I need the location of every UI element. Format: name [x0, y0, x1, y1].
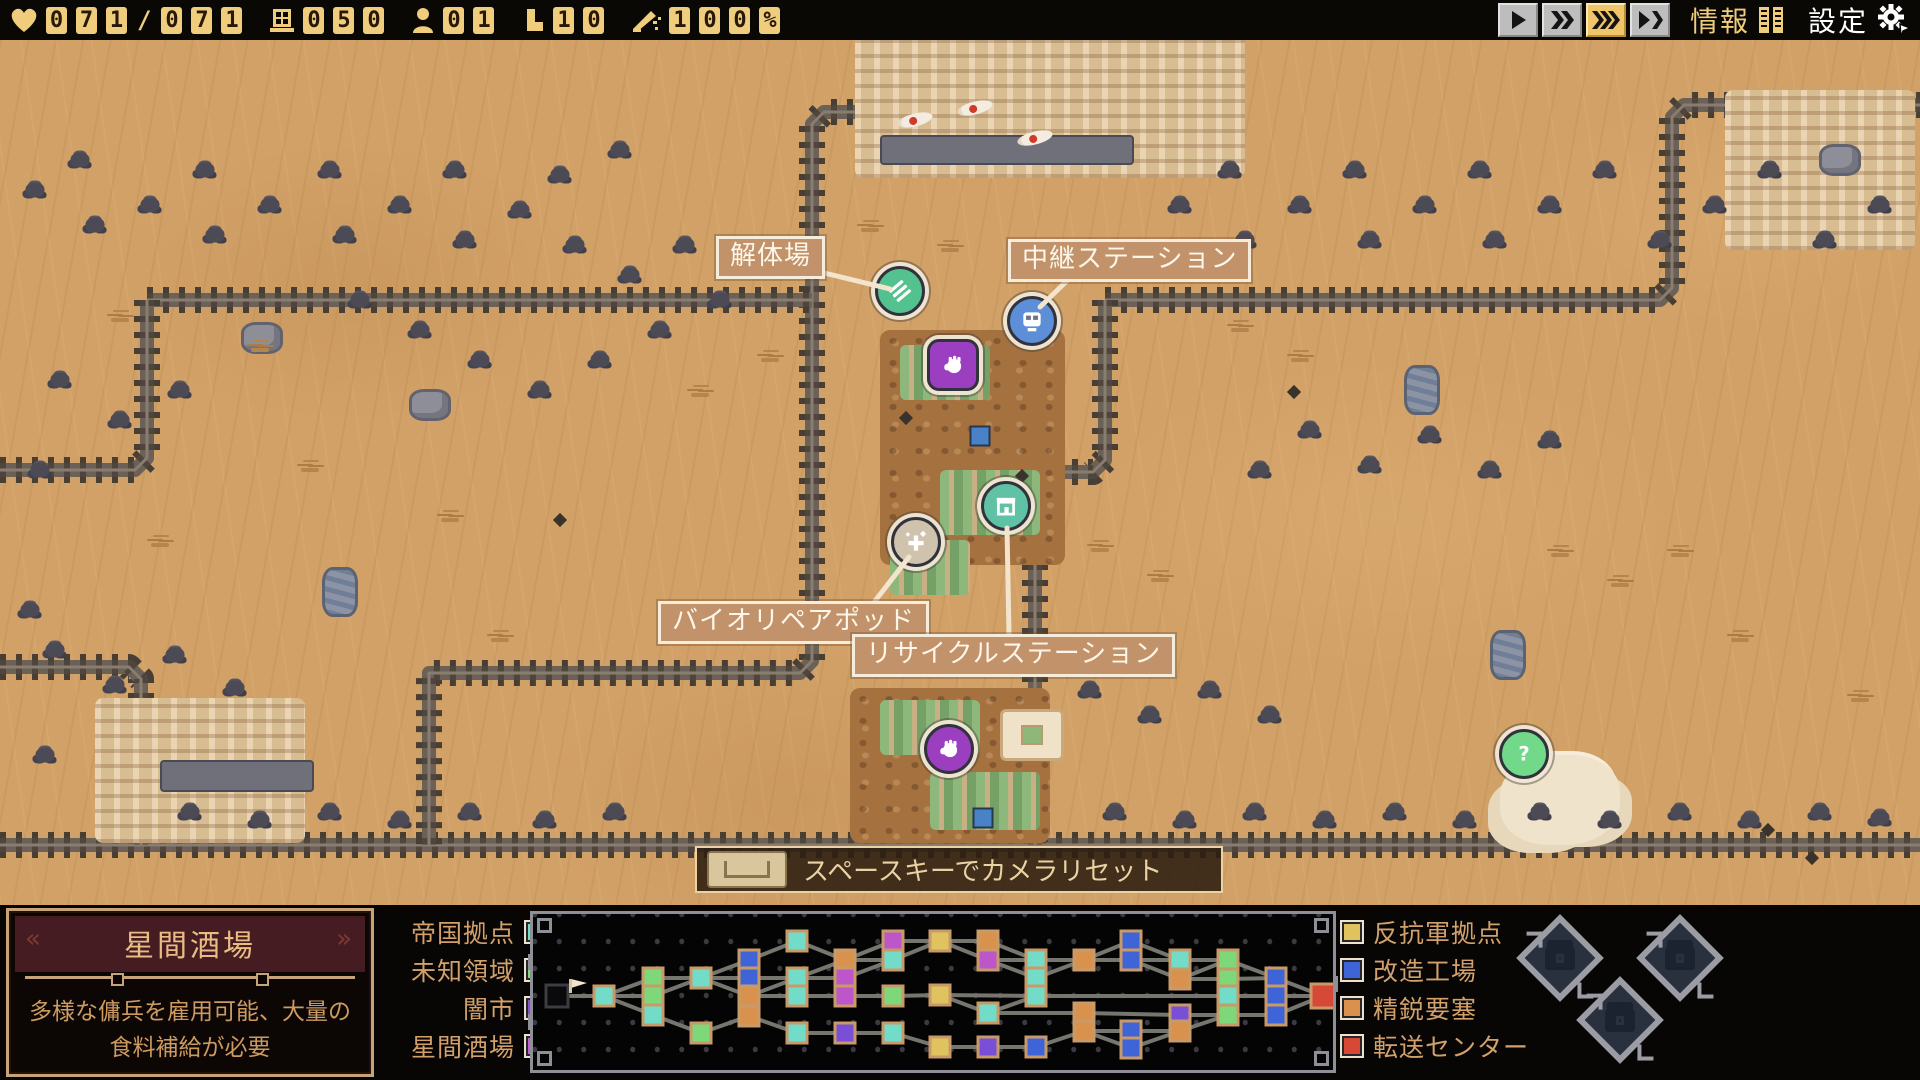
- camera-hint-text: スペースキーでカメラリセット: [803, 851, 1162, 888]
- bush: [1651, 233, 1670, 248]
- grass: [1551, 553, 1569, 557]
- bush: [31, 463, 50, 478]
- slot-chevron: [1587, 994, 1603, 1010]
- digit: 0: [46, 7, 67, 34]
- bush: [1471, 163, 1490, 178]
- bush: [1416, 198, 1435, 213]
- bush: [106, 678, 125, 693]
- bush: [226, 681, 245, 696]
- grass: [111, 318, 129, 322]
- bush: [1316, 813, 1335, 828]
- legend-label: 転送センター: [1373, 1028, 1529, 1064]
- route-node-orange[interactable]: [1074, 950, 1094, 970]
- legend-swatch: [1340, 1034, 1364, 1058]
- grass: [1851, 698, 1869, 702]
- question-icon: ?: [1511, 741, 1537, 767]
- map-label-relay: 中継ステーション: [1008, 239, 1251, 282]
- resource-crew: 01: [411, 7, 495, 34]
- bush: [36, 748, 55, 763]
- location-description: 多様な傭兵を雇用可能、大量の 食料補給が必要: [9, 987, 371, 1074]
- bush: [591, 353, 610, 368]
- rock2: [1490, 630, 1526, 680]
- bush: [1811, 805, 1830, 820]
- bush: [531, 383, 550, 398]
- route-node-orange[interactable]: [1074, 1021, 1094, 1041]
- grass: [861, 228, 879, 232]
- map-label-recycle: リサイクルステーション: [852, 634, 1175, 677]
- bush: [621, 268, 640, 283]
- bush: [321, 805, 340, 820]
- slot-chevron: [1527, 932, 1543, 948]
- pad-marker-top[interactable]: [927, 339, 979, 391]
- grass: [1731, 638, 1749, 642]
- bush: [551, 168, 570, 183]
- cursor-icon: [1900, 24, 1910, 37]
- person-icon: [411, 7, 435, 33]
- bush: [711, 293, 730, 308]
- legend-item: 転送センター: [1340, 1027, 1529, 1065]
- bush: [456, 233, 475, 248]
- route-node-blue[interactable]: [1026, 1037, 1046, 1057]
- bush: [46, 643, 65, 658]
- route-node-cyan[interactable]: [787, 986, 807, 1006]
- bush: [1596, 163, 1615, 178]
- boot-icon: [521, 7, 545, 33]
- bush: [1871, 198, 1890, 213]
- route-node-blue[interactable]: [1266, 1005, 1286, 1025]
- speed-fast[interactable]: [1542, 3, 1582, 37]
- rock: [1819, 144, 1861, 176]
- bush: [1171, 198, 1190, 213]
- route-node-cyan[interactable]: [691, 968, 711, 988]
- resource-supplies: 050: [269, 7, 385, 34]
- bush: [651, 323, 670, 338]
- pad: [1000, 709, 1064, 761]
- bush: [111, 413, 130, 428]
- route-node-magenta[interactable]: [978, 950, 998, 970]
- bush: [71, 153, 90, 168]
- bush: [321, 163, 340, 178]
- legend-item: 精鋭要塞: [1340, 989, 1477, 1027]
- route-node-orange[interactable]: [739, 1006, 759, 1026]
- bush: [336, 228, 355, 243]
- bush: [1456, 813, 1475, 828]
- bush: [1481, 463, 1500, 478]
- route-node-green[interactable]: [1218, 1005, 1238, 1025]
- legend-label: 未知領域: [411, 952, 515, 988]
- chest-icon: [1545, 946, 1575, 970]
- route-node-cyan[interactable]: [978, 1003, 998, 1023]
- quill-icon: [631, 7, 661, 33]
- bush: [196, 163, 215, 178]
- slot-chevron: [1647, 932, 1663, 948]
- legend-swatch: [1340, 996, 1364, 1020]
- svg-text:?: ?: [1518, 743, 1529, 766]
- route-node-cyan[interactable]: [594, 986, 614, 1006]
- spacebar-key-icon: [707, 851, 787, 888]
- route-node-cyan[interactable]: [883, 1023, 903, 1043]
- route-node-violet[interactable]: [978, 1037, 998, 1057]
- legend-item: 改造工場: [1340, 951, 1477, 989]
- digit: 0: [161, 7, 182, 34]
- route-node-current[interactable]: [546, 985, 568, 1007]
- speed-skip[interactable]: [1630, 3, 1670, 37]
- camera-hint: スペースキーでカメラリセット: [695, 846, 1223, 893]
- slot-chevron: [1637, 1045, 1653, 1061]
- legend-swatch: [1340, 958, 1364, 982]
- bush: [181, 805, 200, 820]
- grass: [1151, 578, 1169, 582]
- resource-counters: 071/0710500110100%: [0, 7, 807, 34]
- legend-item: 星間酒場: [411, 1027, 548, 1065]
- grass: [251, 348, 269, 352]
- settings-button[interactable]: 設定: [1808, 0, 1912, 40]
- grass: [441, 518, 459, 522]
- settings-button-label: 設定: [1808, 0, 1868, 40]
- route-node-blue[interactable]: [1121, 950, 1141, 970]
- bush: [1346, 163, 1365, 178]
- map-label-dismantle: 解体場: [716, 236, 825, 279]
- route-node-cyan[interactable]: [1170, 950, 1190, 970]
- chest-icon: [1605, 1008, 1635, 1032]
- route-node-cyan[interactable]: [1026, 986, 1046, 1006]
- route-node-cyan[interactable]: [1218, 986, 1238, 1006]
- route-node-violet[interactable]: [835, 1023, 855, 1043]
- biorepair-marker[interactable]: [891, 517, 941, 567]
- bush: [261, 198, 280, 213]
- bush: [21, 603, 40, 618]
- digit: %: [759, 7, 780, 34]
- route-node-orange[interactable]: [1170, 969, 1190, 989]
- info-button[interactable]: 情報: [1690, 0, 1788, 40]
- bush: [86, 218, 105, 233]
- bush: [471, 353, 490, 368]
- bush: [1386, 805, 1405, 820]
- bush: [611, 143, 630, 158]
- hand-icon: [940, 352, 966, 378]
- bush: [511, 203, 530, 218]
- sparkle-icon: [903, 529, 929, 555]
- digit: /: [137, 7, 151, 34]
- bush: [411, 323, 430, 338]
- recycle-marker[interactable]: [981, 481, 1031, 531]
- crate: [973, 808, 994, 829]
- legend-right: 反抗軍拠点改造工場精鋭要塞転送センター: [1340, 913, 1540, 1065]
- bush: [1741, 813, 1760, 828]
- location-info-card: 星間酒場 多様な傭兵を雇用可能、大量の 食料補給が必要: [6, 908, 374, 1077]
- grass: [761, 358, 779, 362]
- info-button-label: 情報: [1690, 0, 1750, 40]
- window-icon: [269, 7, 295, 33]
- crate: [970, 426, 991, 447]
- resource-parts: 10: [521, 7, 605, 34]
- route-node-green[interactable]: [1218, 950, 1238, 970]
- bush: [1201, 683, 1220, 698]
- bush: [1081, 683, 1100, 698]
- grass: [301, 468, 319, 472]
- top-hud-bar: 071/0710500110100% 情報 設定: [0, 0, 1920, 40]
- speed-play[interactable]: [1498, 3, 1538, 37]
- digit: 7: [76, 7, 97, 34]
- bush: [1251, 463, 1270, 478]
- bush: [26, 183, 45, 198]
- digit: 0: [699, 7, 720, 34]
- grass: [1291, 358, 1309, 362]
- bush: [1541, 198, 1560, 213]
- bush: [1246, 805, 1265, 820]
- ledger-icon: [1756, 5, 1788, 35]
- legend-left: 帝国拠点未知領域闇市星間酒場: [398, 913, 548, 1065]
- route-node-green[interactable]: [691, 1023, 711, 1043]
- legend-item: 帝国拠点: [411, 913, 548, 951]
- bush: [1541, 433, 1560, 448]
- digit: 0: [303, 7, 324, 34]
- grass: [1091, 548, 1109, 552]
- route-node-cyan[interactable]: [787, 931, 807, 951]
- route-node-orange[interactable]: [978, 931, 998, 951]
- grass: [1611, 583, 1629, 587]
- speed-buttons: [1498, 3, 1670, 37]
- route-node-yellow[interactable]: [930, 931, 950, 951]
- rock: [409, 389, 451, 421]
- route-network-panel[interactable]: [530, 911, 1336, 1073]
- resource-morale: 100%: [631, 7, 781, 34]
- resource-hp: 071/071: [10, 7, 243, 34]
- digit: 5: [333, 7, 354, 34]
- route-node-blue[interactable]: [1121, 931, 1141, 951]
- wreck: [160, 760, 314, 792]
- legend-item: 反抗軍拠点: [1340, 913, 1503, 951]
- grass: [1671, 553, 1689, 557]
- digit: 7: [191, 7, 212, 34]
- bush: [1361, 233, 1380, 248]
- cargo-slot-2[interactable]: [1636, 914, 1724, 1002]
- route-node-magenta[interactable]: [883, 931, 903, 951]
- scrap-icon: [887, 278, 913, 304]
- bush: [1601, 813, 1620, 828]
- bush: [391, 198, 410, 213]
- bush: [391, 813, 410, 828]
- bush: [1361, 458, 1380, 473]
- digit: 1: [473, 7, 494, 34]
- wreck: [880, 135, 1134, 165]
- relay-marker[interactable]: [1007, 296, 1057, 346]
- bush: [1106, 805, 1125, 820]
- route-node-red[interactable]: [1311, 984, 1333, 1008]
- digit: 0: [443, 7, 464, 34]
- grass: [491, 638, 509, 642]
- dismantle-marker[interactable]: [875, 266, 925, 316]
- digit: 1: [669, 7, 690, 34]
- speed-faster[interactable]: [1586, 3, 1626, 37]
- route-node-green[interactable]: [643, 986, 663, 1006]
- bush: [1176, 813, 1195, 828]
- digit: 0: [583, 7, 604, 34]
- bush: [166, 648, 185, 663]
- bush: [536, 813, 555, 828]
- rock2: [1404, 365, 1440, 415]
- unknown-marker[interactable]: ?: [1499, 729, 1549, 779]
- grass: [1231, 328, 1249, 332]
- chest-icon: [1665, 946, 1695, 970]
- legend-label: 帝国拠点: [411, 914, 515, 950]
- bush: [1706, 198, 1725, 213]
- bush: [1301, 423, 1320, 438]
- legend-swatch: [1340, 920, 1364, 944]
- game-controls: 情報 設定: [1498, 0, 1920, 40]
- bush: [461, 805, 480, 820]
- route-node-cyan[interactable]: [643, 1005, 663, 1025]
- heart-icon: [10, 7, 38, 33]
- bush: [206, 228, 225, 243]
- bush: [51, 373, 70, 388]
- grass: [151, 543, 169, 547]
- digit: 0: [363, 7, 384, 34]
- bush: [141, 198, 160, 213]
- route-node-orange[interactable]: [1170, 1021, 1190, 1041]
- route-graph: [533, 914, 1333, 1070]
- grass: [941, 248, 959, 252]
- bush: [1221, 163, 1240, 178]
- bottom-panel: 星間酒場 多様な傭兵を雇用可能、大量の 食料補給が必要 帝国拠点未知領域闇市星間…: [0, 905, 1920, 1080]
- route-node-green[interactable]: [883, 986, 903, 1006]
- bush: [566, 238, 585, 253]
- route-node-cyan[interactable]: [787, 1023, 807, 1043]
- bush: [171, 383, 190, 398]
- game-screen: ? 解体場中継ステーションバイオリペアポッドリサイクルステーション スペースキー…: [0, 0, 1920, 1080]
- panel-tick: [1333, 976, 1338, 992]
- bush: [1486, 233, 1505, 248]
- legend-label: 精鋭要塞: [1373, 990, 1477, 1026]
- legend-label: 星間酒場: [411, 1028, 515, 1064]
- rock2: [322, 567, 358, 617]
- location-title: 星間酒場: [124, 929, 256, 964]
- bush: [1531, 805, 1550, 820]
- hand-icon: [936, 736, 962, 762]
- bush: [1871, 811, 1890, 826]
- route-node-blue[interactable]: [1266, 986, 1286, 1006]
- bush: [1421, 428, 1440, 443]
- bush: [1141, 708, 1160, 723]
- shop-icon: [993, 493, 1019, 519]
- bush: [1816, 233, 1835, 248]
- route-node-cyan[interactable]: [883, 950, 903, 970]
- legend-label: 改造工場: [1373, 952, 1477, 988]
- bush: [1671, 805, 1690, 820]
- card-divider: [25, 976, 355, 985]
- route-node-magenta[interactable]: [835, 986, 855, 1006]
- bush: [446, 163, 465, 178]
- digit: 0: [729, 7, 750, 34]
- bush: [251, 813, 270, 828]
- digit: 1: [221, 7, 242, 34]
- slot-chevron: [1697, 983, 1713, 999]
- route-node-yellow[interactable]: [930, 985, 950, 1005]
- bush: [606, 805, 625, 820]
- route-node-yellow[interactable]: [930, 1037, 950, 1057]
- bush: [1291, 198, 1310, 213]
- pad-marker-low[interactable]: [924, 724, 974, 774]
- digit: 1: [553, 7, 574, 34]
- location-title-band: 星間酒場: [15, 916, 365, 972]
- train-icon: [1019, 308, 1045, 334]
- legend-label: 闇市: [463, 990, 515, 1026]
- bush: [676, 238, 695, 253]
- bush: [1261, 708, 1280, 723]
- grass: [691, 393, 709, 397]
- route-node-blue[interactable]: [1121, 1038, 1141, 1058]
- bush: [351, 293, 370, 308]
- bush: [1761, 163, 1780, 178]
- legend-label: 反抗軍拠点: [1373, 914, 1503, 950]
- route-node-orange[interactable]: [739, 986, 759, 1006]
- digit: 1: [106, 7, 127, 34]
- gear-icon: [1874, 2, 1912, 38]
